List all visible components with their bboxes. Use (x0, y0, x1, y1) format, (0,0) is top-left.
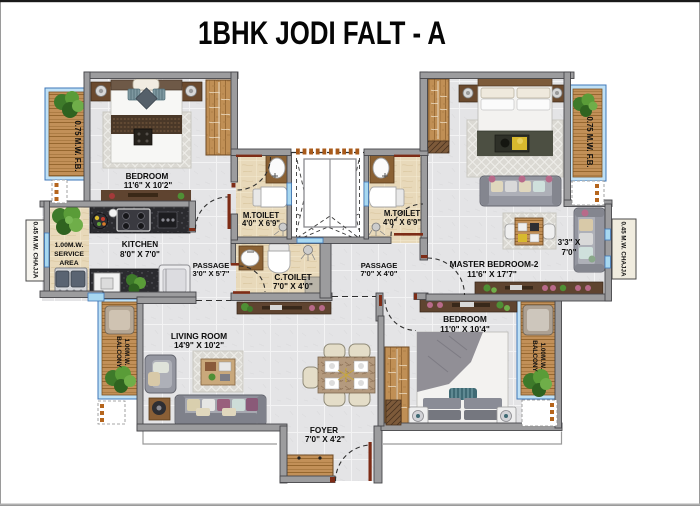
svg-text:0.75 M.W. F.B.: 0.75 M.W. F.B. (585, 116, 594, 167)
svg-text:SERVICE: SERVICE (54, 251, 84, 258)
svg-text:0.45 M.W. CHAJJA: 0.45 M.W. CHAJJA (32, 222, 39, 279)
svg-text:M.TOILET: M.TOILET (384, 209, 420, 218)
svg-text:3'0" X 5'7": 3'0" X 5'7" (193, 269, 230, 278)
svg-text:14'9" X 10'2": 14'9" X 10'2" (174, 340, 224, 350)
svg-text:7'0" X 4'0": 7'0" X 4'0" (361, 269, 398, 278)
svg-text:MASTER BEDROOM-2: MASTER BEDROOM-2 (450, 259, 539, 269)
svg-text:1.00M.W.: 1.00M.W. (539, 343, 546, 370)
svg-text:4'0" X 6'9": 4'0" X 6'9" (242, 219, 280, 228)
svg-text:BALCONY: BALCONY (115, 336, 122, 368)
svg-text:11'6" X 10'2": 11'6" X 10'2" (124, 181, 173, 190)
svg-text:1.00M.W.: 1.00M.W. (55, 242, 84, 249)
svg-text:0.75 M.W. F.B.: 0.75 M.W. F.B. (73, 120, 82, 171)
svg-text:AREA: AREA (59, 260, 78, 267)
svg-text:BALCONY: BALCONY (531, 340, 538, 372)
svg-text:3'3" X: 3'3" X (558, 238, 581, 247)
svg-text:1.00M.W.: 1.00M.W. (123, 339, 130, 366)
svg-text:FOYER: FOYER (310, 426, 338, 435)
svg-text:11'0" X 10'4": 11'0" X 10'4" (440, 324, 490, 334)
svg-text:11'6" X 17'7": 11'6" X 17'7" (467, 269, 517, 279)
svg-text:4'0" X 6'9": 4'0" X 6'9" (383, 218, 421, 227)
svg-text:BEDROOM: BEDROOM (443, 314, 487, 324)
svg-text:1BHK JODI FALT - A: 1BHK JODI FALT - A (198, 15, 446, 51)
svg-text:C.TOILET: C.TOILET (274, 273, 311, 282)
svg-text:7'0" X 4'0": 7'0" X 4'0" (273, 282, 313, 291)
svg-text:0.45 M.W. CHAJJA: 0.45 M.W. CHAJJA (620, 222, 627, 277)
svg-text:7'0" X 4'2": 7'0" X 4'2" (305, 435, 345, 444)
svg-text:8'0" X 7'0": 8'0" X 7'0" (120, 250, 160, 259)
svg-text:7'0": 7'0" (562, 248, 577, 257)
svg-text:KITCHEN: KITCHEN (122, 240, 158, 249)
svg-text:BEDROOM: BEDROOM (126, 172, 169, 181)
